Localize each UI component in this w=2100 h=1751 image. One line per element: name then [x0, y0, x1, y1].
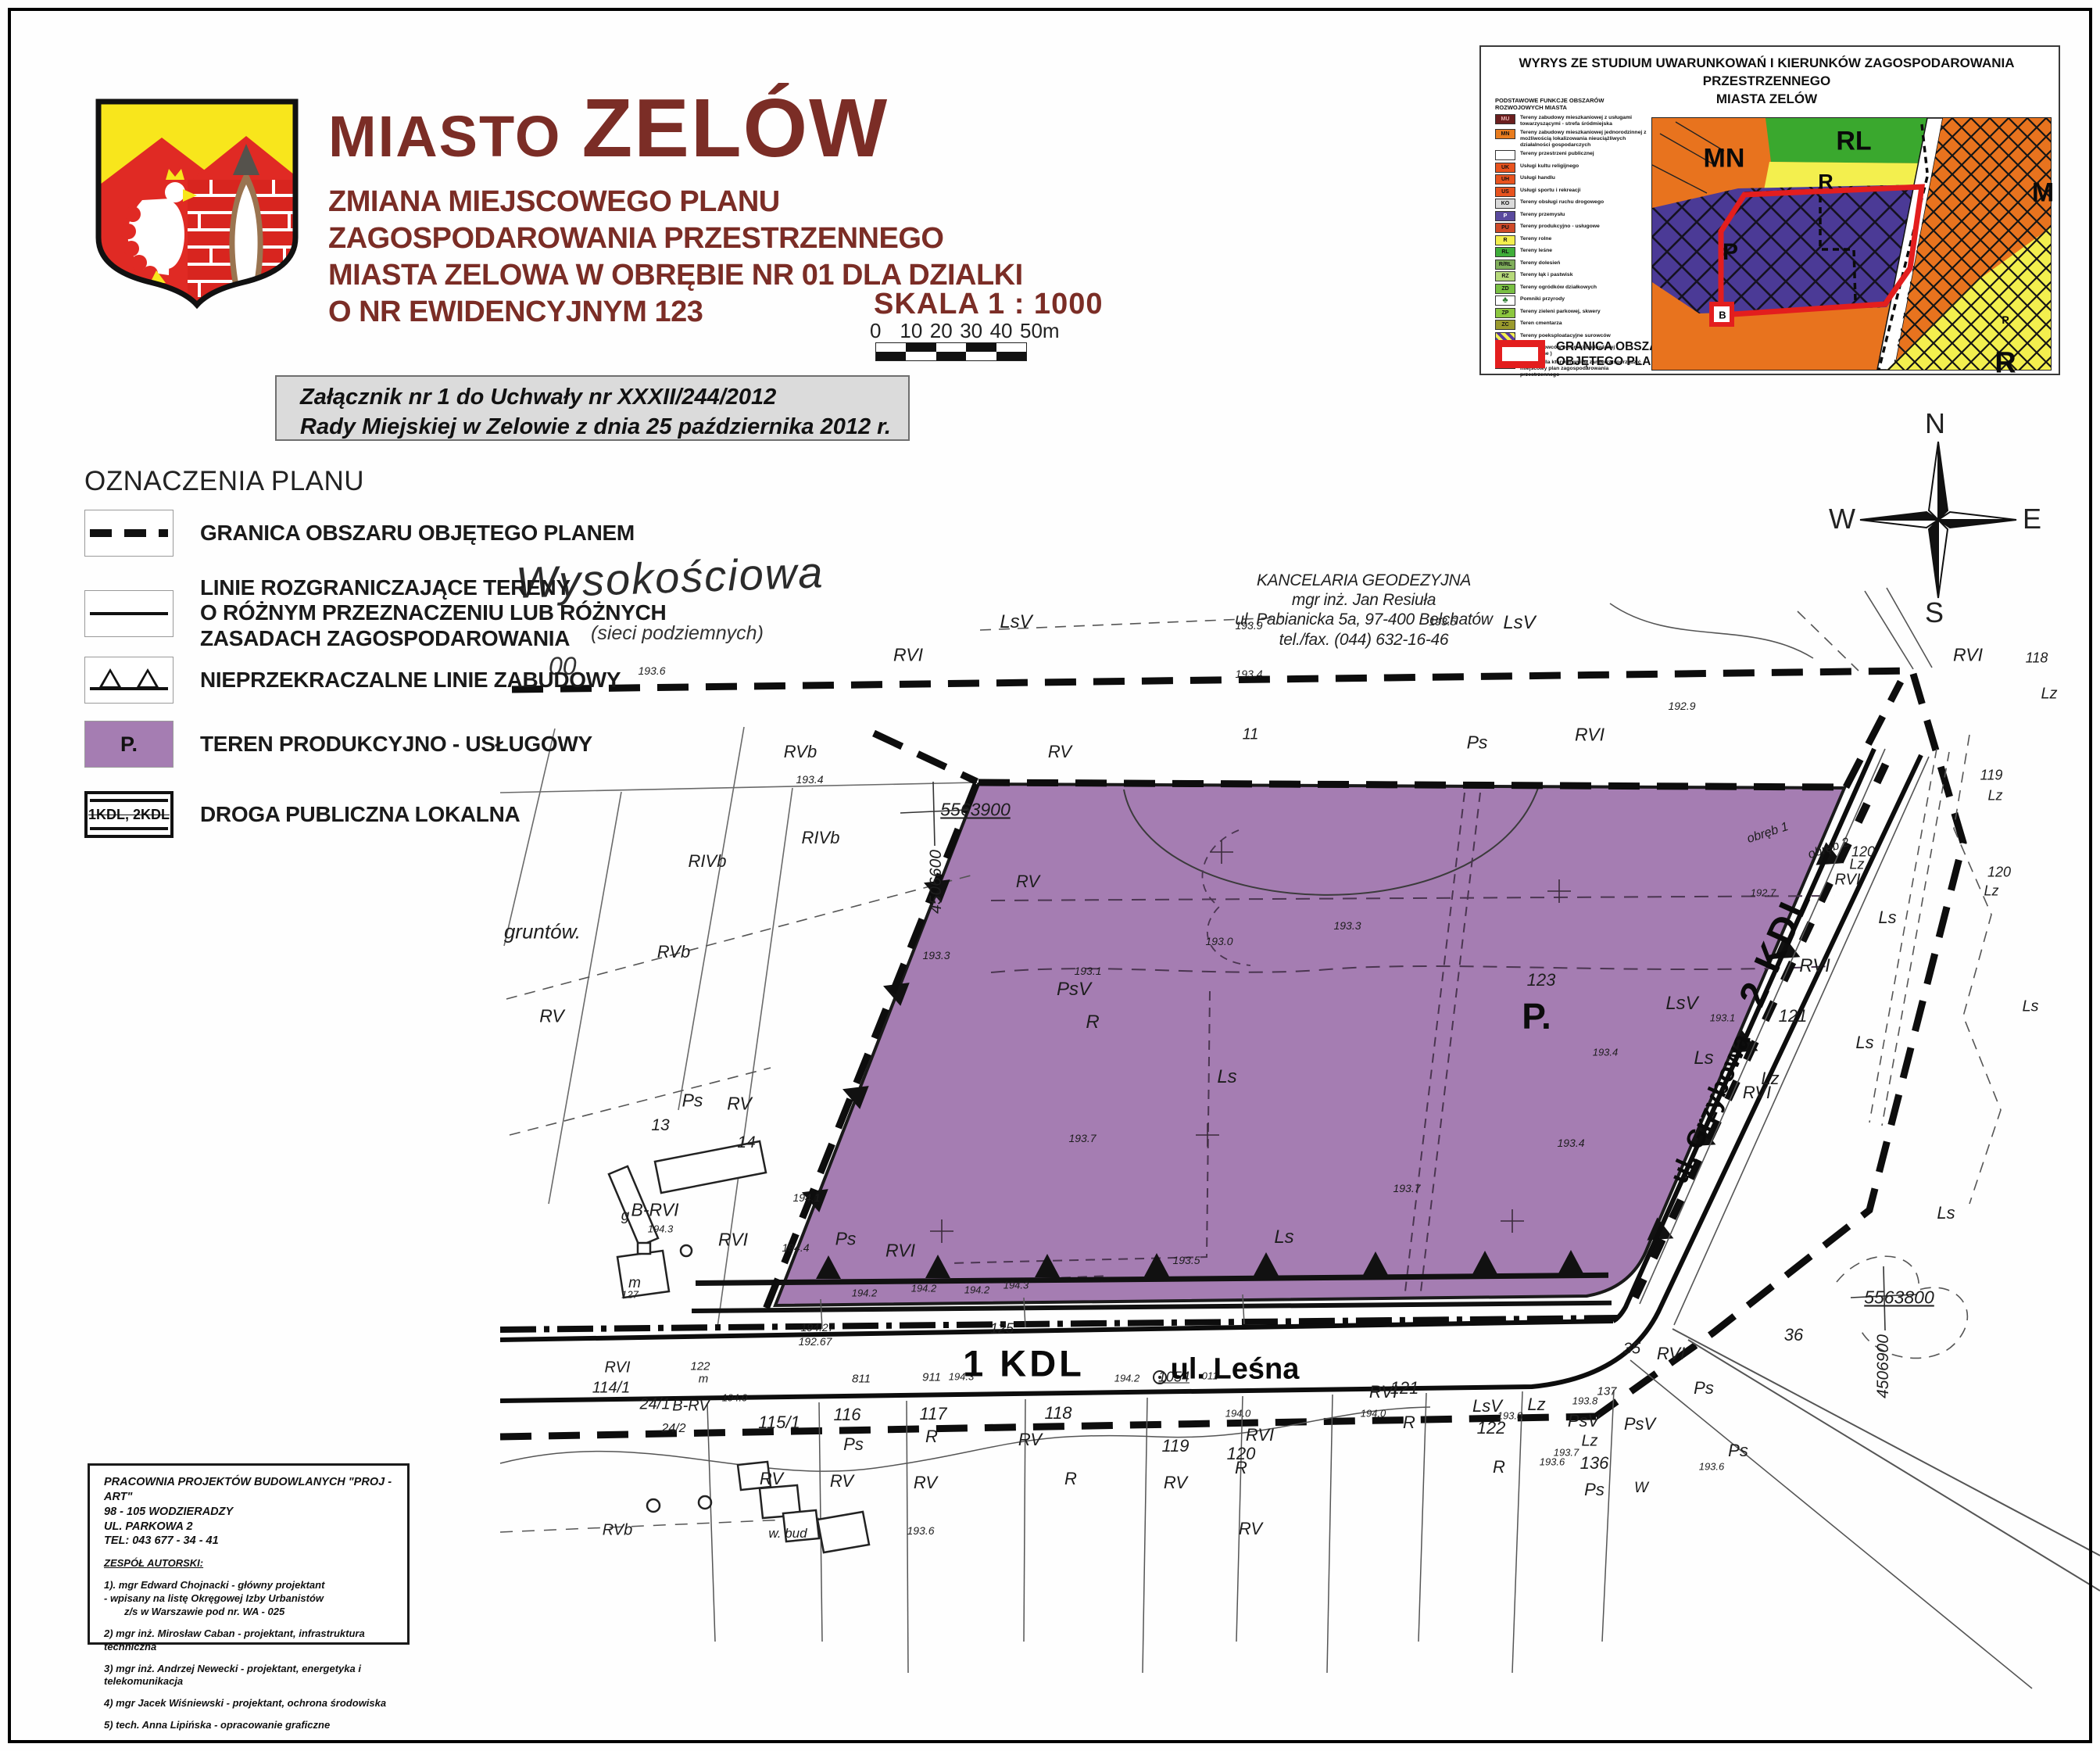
- street-name-lesna: ul. Leśna: [1171, 1353, 1300, 1387]
- credits-line: PRACOWNIA PROJEKTÓW BUDOWLANYCH "PROJ - …: [104, 1475, 401, 1505]
- inset-legend-swatch: [1495, 150, 1515, 160]
- production-area-swatch: P.: [84, 721, 174, 768]
- credits-line: ZESPÓŁ AUTORSKI:: [104, 1557, 401, 1570]
- legend-item-boundary: GRANICA OBSZARU OBJĘTEGO PLANEM: [84, 510, 635, 557]
- compass-star: [1837, 418, 2040, 621]
- credits-line: 3) mgr inż. Andrzej Newecki - projektant…: [104, 1663, 401, 1689]
- inset-legend-text: Tereny zabudowy mieszkaniowej z usługami…: [1520, 114, 1647, 127]
- zelow-coat-of-arms: [88, 92, 306, 311]
- inset-map-label: B: [1719, 310, 1726, 321]
- inset-legend-header: PODSTAWOWE FUNKCJE OBSZARÓW ROZWOJOWYCH …: [1495, 97, 1647, 111]
- inset-legend-text: Usługi handlu: [1520, 174, 1555, 181]
- inset-legend-item: PTereny przemysłu: [1495, 211, 1647, 221]
- inset-legend-item: ♣Pomniki przyrody: [1495, 295, 1647, 306]
- compass-rose: N E S W: [1837, 418, 2040, 621]
- subtitle-line: ZMIANA MIEJSCOWEGO PLANU: [328, 184, 1023, 220]
- attachment-note: Załącznik nr 1 do Uchwały nr XXXII/244/2…: [275, 375, 910, 441]
- inset-legend-item: Tereny przestrzeni publicznej: [1495, 150, 1647, 160]
- inset-legend-text: Tereny rolne: [1520, 235, 1551, 242]
- inset-map: MNRLRPMPRB: [1651, 117, 2052, 371]
- credits-line: z/s w Warszawie pod nr. WA - 025: [104, 1606, 401, 1619]
- inset-map-label: MN: [1704, 144, 1745, 174]
- inset-legend-swatch: RL: [1495, 247, 1515, 257]
- inset-title-line: WYRYS ZE STUDIUM UWARUNKOWAŃ I KIERUNKÓW…: [1481, 55, 2052, 91]
- studium-inset: WYRYS ZE STUDIUM UWARUNKOWAŃ I KIERUNKÓW…: [1479, 45, 2060, 375]
- road-label-1kdl: 1 KDL: [963, 1342, 1085, 1385]
- inset-legend-item: ZCTeren cmentarza: [1495, 320, 1647, 330]
- inset-legend-item: MUTereny zabudowy mieszkaniowej z usługa…: [1495, 114, 1647, 127]
- inset-map-label: R: [1818, 170, 1833, 195]
- credits-line: 5) tech. Anna Lipińska - opracowanie gra…: [104, 1719, 401, 1732]
- legend-label-line: LINIE ROZGRANICZAJĄCE TERENY: [200, 575, 666, 600]
- surveyor-line: mgr inż. Jan Resiuła: [1204, 590, 1524, 610]
- inset-legend-item: ZPTereny zieleni parkowej, skwery: [1495, 308, 1647, 318]
- inset-legend-swatch: R/RL: [1495, 260, 1515, 270]
- inset-map-label: P: [1723, 239, 1738, 266]
- compass-south: S: [1925, 596, 1944, 629]
- credits-line: 98 - 105 WODZIERADZY: [104, 1505, 401, 1520]
- inset-legend-text: Teren cmentarza: [1520, 320, 1562, 327]
- legend-label-line: O RÓŻNYM PRZEZNACZENIU LUB RÓŻNYCH: [200, 600, 666, 625]
- inset-granica-item: GRANICA OBSZARU OBJĘTEGO PLANEM: [1495, 339, 1678, 370]
- inset-legend-text: Tereny dolesień: [1520, 260, 1560, 267]
- inset-legend-swatch: US: [1495, 187, 1515, 197]
- boundary-swatch: [84, 510, 174, 557]
- inset-legend-text: Usługi sportu i rekreacji: [1520, 187, 1580, 194]
- inset-legend-swatch: ZC: [1495, 320, 1515, 330]
- scale-bar-graphic: [875, 342, 1027, 361]
- inset-legend-text: Pomniki przyrody: [1520, 295, 1565, 303]
- inset-map-label: P: [2002, 313, 2009, 326]
- inset-map-label: R: [1994, 347, 2016, 381]
- attachment-line: Załącznik nr 1 do Uchwały nr XXXII/244/2…: [300, 383, 908, 413]
- inset-legend-item: UHUsługi handlu: [1495, 174, 1647, 184]
- title-miasto: MIASTO: [328, 103, 561, 170]
- inset-legend-item: RZTereny łąk i pastwisk: [1495, 271, 1647, 281]
- inset-legend-item: PUTereny produkcyjno - usługowe: [1495, 223, 1647, 233]
- scale-label: SKALA 1 : 1000: [874, 288, 1103, 321]
- title-zelow: ZELÓW: [581, 81, 889, 176]
- inset-legend-swatch: MN: [1495, 129, 1515, 139]
- legend-item-label: TEREN PRODUKCYJNO - USŁUGOWY: [200, 732, 592, 757]
- subtitle-line: ZAGOSPODAROWANIA PRZESTRZENNEGO: [328, 220, 1023, 257]
- public-road-swatch: 1KDL, 2KDL: [84, 791, 174, 838]
- legend-item-dividing-lines: LINIE ROZGRANICZAJĄCE TERENY O RÓŻNYM PR…: [84, 575, 666, 651]
- swatch-code: 1KDL, 2KDL: [88, 807, 170, 823]
- scale-tick: 40: [990, 319, 1013, 343]
- inset-legend-text: Tereny zieleni parkowej, skwery: [1520, 308, 1601, 315]
- inset-map-label: M: [2032, 178, 2054, 209]
- scale-tick: 10: [900, 319, 922, 343]
- inset-legend-text: Tereny łąk i pastwisk: [1520, 271, 1573, 278]
- inset-legend-item: RTereny rolne: [1495, 235, 1647, 245]
- inset-legend-swatch: PU: [1495, 223, 1515, 233]
- inset-legend-text: Tereny poeksploatacyjne surowców: [1520, 332, 1611, 339]
- inset-legend-text: Tereny zabudowy mieszkaniowej jednorodzi…: [1520, 129, 1647, 148]
- inset-legend-swatch: ZD: [1495, 284, 1515, 294]
- credits-line: 1). mgr Edward Chojnacki - główny projek…: [104, 1579, 401, 1592]
- inset-legend-item: USUsługi sportu i rekreacji: [1495, 187, 1647, 197]
- compass-west: W: [1829, 503, 1855, 535]
- compass-east: E: [2023, 503, 2041, 535]
- plan-sheet: LsVLsVRVIRVI118193.9193.5193.6193.4192.9…: [0, 0, 2100, 1751]
- inset-legend-text: Usługi kultu religijnego: [1520, 163, 1579, 170]
- compass-north: N: [1925, 407, 1945, 440]
- inset-legend-swatch: R: [1495, 235, 1515, 245]
- inset-legend-text: Tereny przemysłu: [1520, 211, 1565, 218]
- swatch-code: P.: [120, 732, 138, 757]
- surveyor-line: tel./fax. (044) 632-16-46: [1204, 630, 1524, 650]
- credits-line: 2) mgr inż. Mirosław Caban - projektant,…: [104, 1627, 401, 1654]
- granica-red-swatch: [1495, 340, 1545, 368]
- inset-map-label: RL: [1836, 127, 1871, 157]
- inset-map-labels: MNRLRPMPRB: [1652, 118, 2051, 370]
- scale-bar: 01020304050m: [875, 319, 1055, 366]
- credits-line: UL. PARKOWA 2: [104, 1520, 401, 1534]
- inset-legend-swatch: UK: [1495, 163, 1515, 173]
- surveyor-line: KANCELARIA GEODEZYJNA: [1204, 571, 1524, 590]
- inset-legend-swatch: MU: [1495, 114, 1515, 124]
- inset-legend-text: Tereny przestrzeni publicznej: [1520, 150, 1594, 157]
- inset-legend-item: MNTereny zabudowy mieszkaniowej jednorod…: [1495, 129, 1647, 148]
- inset-legend-text: Tereny produkcyjno - usługowe: [1520, 223, 1600, 230]
- dividing-line-swatch: [84, 590, 174, 637]
- inset-legend-item: KOTereny obsługi ruchu drogowego: [1495, 199, 1647, 209]
- attachment-line: Rady Miejskiej w Zelowie z dnia 25 paźdz…: [300, 413, 908, 442]
- credits-box: PRACOWNIA PROJEKTÓW BUDOWLANYCH "PROJ - …: [88, 1463, 410, 1645]
- inset-legend-swatch: ♣: [1495, 295, 1515, 306]
- inset-legend-swatch: RZ: [1495, 271, 1515, 281]
- legend-item-public-road: 1KDL, 2KDL DROGA PUBLICZNA LOKALNA: [84, 791, 520, 838]
- zone-P-polygon: [775, 784, 1844, 1305]
- inset-legend-item: ZDTereny ogródków działkowych: [1495, 284, 1647, 294]
- credits-line: 4) mgr Jacek Wiśniewski - projektant, oc…: [104, 1697, 401, 1710]
- scale-tick: 30: [960, 319, 982, 343]
- inset-legend-text: Tereny obsługi ruchu drogowego: [1520, 199, 1604, 206]
- scale-bar-ticks: 01020304050m: [875, 319, 1055, 342]
- inset-legend-item: RLTereny leśne: [1495, 247, 1647, 257]
- inset-legend-swatch: KO: [1495, 199, 1515, 209]
- scale-tick: 0: [870, 319, 881, 343]
- page-title: MIASTO ZELÓW: [328, 81, 1023, 176]
- legend-heading: OZNACZENIA PLANU: [84, 466, 364, 497]
- legend-item-label: GRANICA OBSZARU OBJĘTEGO PLANEM: [200, 521, 635, 546]
- inset-legend-text: Tereny ogródków działkowych: [1520, 284, 1597, 291]
- inset-legend-items: MUTereny zabudowy mieszkaniowej z usługa…: [1495, 114, 1647, 378]
- inset-legend-swatch: ZP: [1495, 308, 1515, 318]
- credits-line: - wpisany na listę Okręgowej Izby Urbani…: [104, 1592, 401, 1606]
- inset-legend: PODSTAWOWE FUNKCJE OBSZARÓW ROZWOJOWYCH …: [1495, 97, 1647, 380]
- legend-item-production-area: P. TEREN PRODUKCYJNO - USŁUGOWY: [84, 721, 592, 768]
- legend-item-label: DROGA PUBLICZNA LOKALNA: [200, 802, 520, 827]
- inset-legend-text: Tereny leśne: [1520, 247, 1552, 254]
- scale-tick: 50m: [1020, 319, 1060, 343]
- inset-legend-item: R/RLTereny dolesień: [1495, 260, 1647, 270]
- scale-tick: 20: [930, 319, 953, 343]
- benchmark-point: [1154, 1371, 1166, 1384]
- legend-item-label: LINIE ROZGRANICZAJĄCE TERENY O RÓŻNYM PR…: [200, 575, 666, 651]
- credits-line: TEL: 043 677 - 34 - 41: [104, 1534, 401, 1549]
- surveyor-line: ul. Pabianicka 5a, 97-400 Bełchatów: [1204, 610, 1524, 629]
- surveyor-stamp: KANCELARIA GEODEZYJNA mgr inż. Jan Resiu…: [1204, 571, 1524, 650]
- inset-legend-swatch: UH: [1495, 174, 1515, 184]
- building-line-swatch: [84, 657, 174, 704]
- legend-item-building-line: NIEPRZEKRACZALNE LINIE ZABUDOWY: [84, 657, 621, 704]
- inset-legend-swatch: P: [1495, 211, 1515, 221]
- legend-label-line: ZASADACH ZAGOSPODAROWANIA: [200, 626, 666, 651]
- inset-legend-item: UKUsługi kultu religijnego: [1495, 163, 1647, 173]
- legend-item-label: NIEPRZEKRACZALNE LINIE ZABUDOWY: [200, 668, 621, 693]
